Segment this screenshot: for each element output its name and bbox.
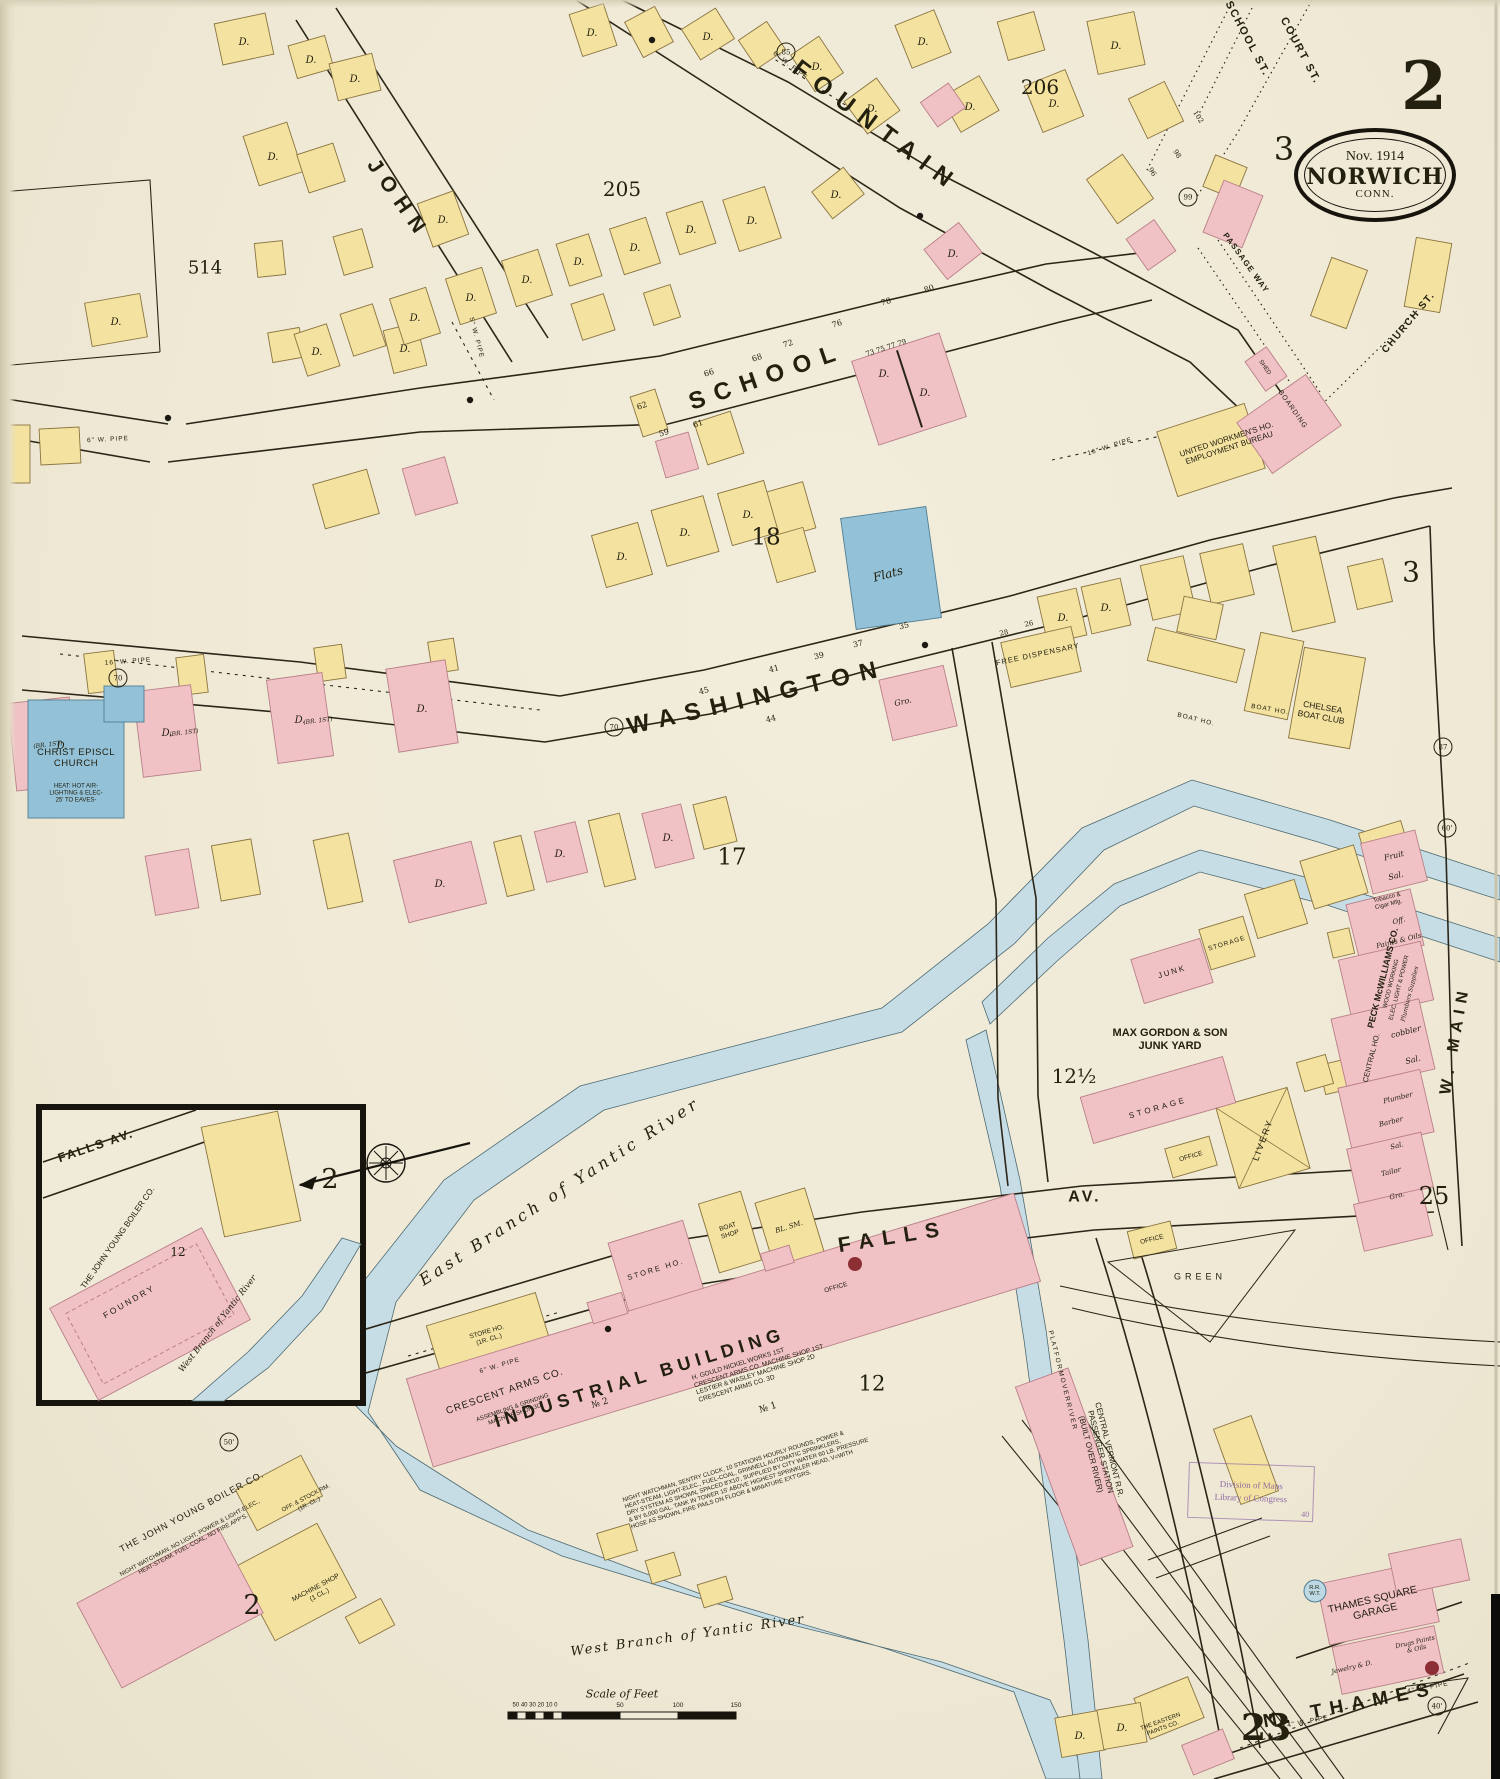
svg-text:D.: D. (685, 225, 697, 236)
scale-tick-50: 50 (616, 1702, 623, 1710)
adjoining-sheet-index-top: 3 (1274, 131, 1294, 169)
stamp-line2: Library of Congress (1214, 1491, 1287, 1506)
rr-water-tank-label: R.R. W.T. (1309, 1585, 1321, 1597)
stamp-number: 40 (1301, 1509, 1309, 1520)
badge-date: Nov. 1914 (1346, 150, 1404, 164)
svg-text:D.: D. (110, 317, 122, 328)
svg-text:D.: D. (616, 552, 628, 563)
svg-text:D.: D. (349, 74, 361, 85)
block-17: 17 (717, 844, 746, 871)
scan-edge-top (0, 0, 1500, 8)
svg-text:D.: D. (238, 37, 250, 48)
svg-text:D.: D. (437, 215, 449, 226)
block-18: 18 (751, 524, 780, 551)
svg-text:D.: D. (1048, 99, 1060, 110)
block-12half: 12½ (1052, 1065, 1097, 1089)
svg-text:D.: D. (399, 344, 411, 355)
svg-text:D.: D. (409, 313, 421, 324)
building-christ-church-note: HEAT: HOT AIR- LIGHTING & ELEC- 25' TO E… (49, 783, 102, 804)
svg-text:D.: D. (878, 369, 890, 380)
svg-text:D.: D. (311, 347, 323, 358)
svg-text:D.: D. (629, 243, 641, 254)
block-2-inset: 2 (321, 1164, 338, 1196)
svg-text:D.: D. (947, 249, 959, 260)
block-2-bottom: 2 (243, 1590, 260, 1622)
svg-text:D.: D. (964, 102, 976, 113)
map-title-badge: Nov. 1914 NORWICH CONN. (1294, 128, 1456, 222)
survey-circle: 99 (1179, 188, 1198, 207)
svg-text:D.: D. (1116, 1723, 1128, 1734)
svg-text:D.: D. (662, 833, 674, 844)
svg-text:D.: D. (1074, 1731, 1086, 1742)
block-514: 514 (188, 257, 222, 278)
svg-text:D.: D. (267, 152, 279, 163)
adjoining-sheet-index-lower-right: 25 (1419, 1182, 1450, 1210)
survey-circle: 40' (1428, 1697, 1447, 1716)
svg-text:D.: D. (573, 257, 585, 268)
survey-circle: 60' (1438, 819, 1457, 838)
poi-max-gordon-junk-yard: MAX GORDON & SON JUNK YARD (1113, 1027, 1228, 1053)
svg-text:D.: D. (416, 704, 428, 715)
block-12: 12 (859, 1372, 886, 1397)
fire-alarm-dot (1425, 1661, 1439, 1675)
svg-text:D.: D. (305, 55, 317, 66)
svg-text:D.: D. (742, 510, 754, 521)
scale-tick-150: 150 (731, 1702, 742, 1710)
badge-city: NORWICH (1306, 166, 1443, 188)
survey-circle: 70 (109, 669, 128, 688)
svg-text:D.: D. (1057, 613, 1069, 624)
svg-text:D.: D. (521, 275, 533, 286)
survey-circle: 87 (1434, 738, 1453, 757)
block-206: 206 (1021, 76, 1059, 100)
street-av: AV. (1068, 1189, 1102, 1208)
svg-text:D.: D. (830, 190, 842, 201)
svg-text:D.: D. (586, 28, 598, 39)
fire-alarm-dot (848, 1257, 862, 1271)
survey-circle: 70 (605, 718, 624, 737)
svg-text:D.: D. (679, 528, 691, 539)
badge-state: CONN. (1356, 189, 1395, 200)
svg-text:D.: D. (554, 849, 566, 860)
sheet-number: 2 (1401, 47, 1447, 125)
sanborn-map-sheet: D.D. D.D. D.D. D.D. D.D. D.D. D.D. D.D. … (0, 0, 1500, 1779)
svg-text:D.: D. (917, 37, 929, 48)
scale-left-ticks: 50 40 30 20 10 0 (512, 1702, 557, 1709)
block-205: 205 (603, 178, 641, 202)
svg-text:D.: D. (1100, 603, 1112, 614)
library-stamp: Division of Maps Library of Congress 40 (1187, 1462, 1315, 1522)
svg-text:D.: D. (702, 32, 714, 43)
svg-text:D.: D. (434, 879, 446, 890)
svg-text:D.: D. (465, 293, 477, 304)
svg-text:D.: D. (919, 388, 931, 399)
scale-bar (508, 1712, 736, 1719)
scale-tick-100: 100 (673, 1702, 684, 1710)
scan-edge-left (0, 0, 16, 1779)
svg-text:D.: D. (1110, 41, 1122, 52)
adjoining-sheet-index-right: 3 (1402, 555, 1420, 588)
block-12-inset: 12 (170, 1245, 185, 1259)
scale-title: Scale of Feet (586, 1689, 658, 1702)
svg-text:D.: D. (746, 216, 758, 227)
area-green: GREEN (1174, 1272, 1226, 1283)
building-christ-church: CHRIST EPISCL CHURCH (37, 747, 115, 769)
dwelling-marks: D.D. D.D. D.D. D.D. D.D. D.D. D.D. D.D. … (56, 28, 1128, 1742)
map-title-badge-inner: Nov. 1914 NORWICH CONN. (1304, 138, 1446, 212)
survey-circle: 50' (220, 1433, 239, 1452)
